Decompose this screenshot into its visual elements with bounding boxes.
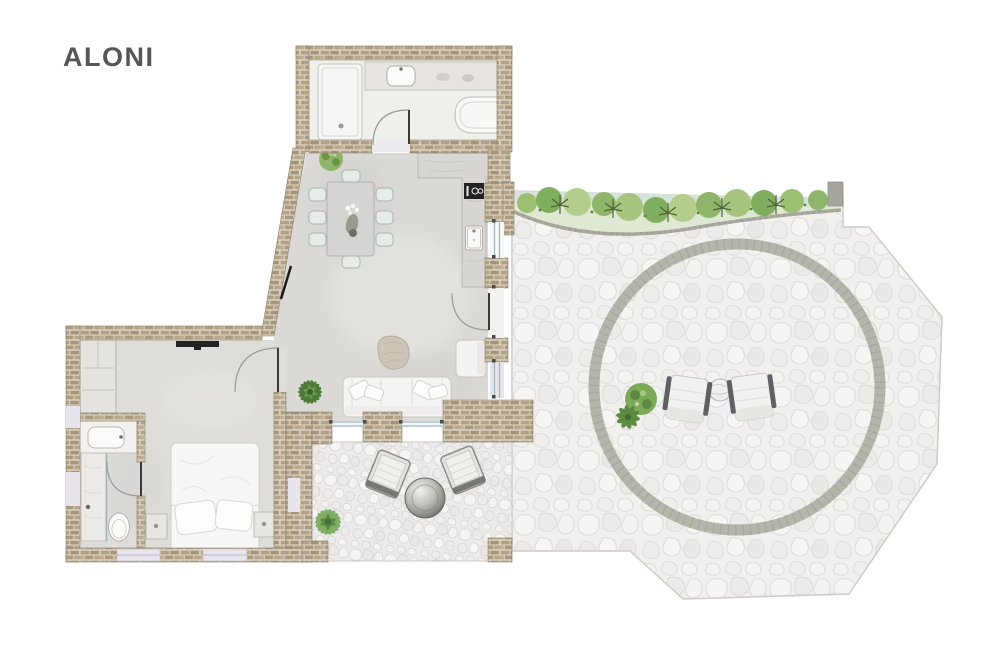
bedroom-door-opening — [274, 348, 286, 392]
tv — [176, 341, 219, 347]
wall-ensuite-b — [137, 421, 145, 462]
wall-kitchen-ne — [488, 150, 510, 183]
wall-bath-divider-right — [410, 140, 500, 153]
east-window-1 — [490, 222, 504, 258]
wall-ensuite-c — [137, 496, 145, 548]
west-window-2 — [66, 472, 80, 506]
wall-corner-pier — [443, 400, 533, 442]
shower-tray — [318, 64, 362, 140]
wall-pier-2 — [485, 258, 508, 288]
shower-drain — [339, 124, 344, 129]
wall-bedroom-bottom — [66, 548, 312, 562]
garden-end-wall — [828, 182, 843, 206]
double-bed — [171, 443, 259, 558]
bed-pillows — [174, 499, 253, 535]
wall-top — [296, 46, 512, 60]
fire-bowl — [405, 478, 445, 518]
east-door-opening — [490, 288, 504, 338]
wall-east-top — [497, 46, 512, 152]
wall-south-pier — [363, 412, 402, 442]
wall-bedroom-east — [274, 392, 286, 562]
wall-bedroom-top — [66, 326, 262, 340]
shower-head — [86, 505, 90, 509]
ensuite-sink — [88, 427, 124, 448]
vanity-counter — [365, 62, 497, 90]
wall-bedroom-left — [66, 326, 80, 562]
bath-door-threshold — [372, 141, 410, 152]
garden-gate-pier — [503, 182, 514, 235]
patio-pier-right — [488, 538, 512, 562]
ensuite-shower — [81, 453, 106, 541]
wall-ensuite-a — [80, 413, 145, 421]
se-wall-window — [288, 478, 300, 512]
faucet — [399, 67, 402, 70]
west-window-1 — [66, 406, 80, 428]
wall-left-top — [296, 46, 309, 152]
wall-bath-divider-left — [309, 140, 372, 153]
floor-plan-svg — [0, 0, 1000, 653]
wall-pier-3 — [485, 338, 508, 362]
east-window-2 — [490, 362, 504, 398]
floor-plan-page: ALONI — [0, 0, 1000, 653]
patio-pier-left — [302, 541, 328, 562]
